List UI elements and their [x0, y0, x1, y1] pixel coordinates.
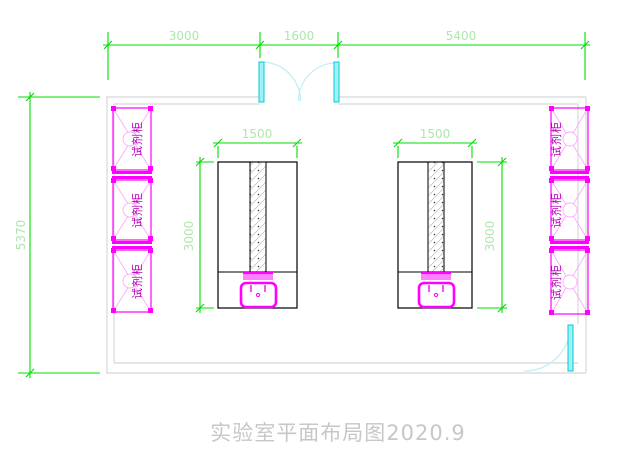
bench2-service-spine: [428, 162, 444, 272]
cabinet-label: 试剂柜: [549, 121, 563, 157]
cabinet-label: 试剂柜: [130, 263, 144, 299]
sink-faucet-marks: [251, 285, 265, 292]
reagent-cabinets-left: 试剂柜 试剂柜 试剂柜: [111, 106, 153, 313]
entrance-door-leaf-right: [334, 62, 339, 102]
side-door-arc: [525, 325, 571, 371]
cabinet-cell: 试剂柜: [549, 106, 590, 171]
dimension-lines: [18, 32, 590, 378]
sink-grill: [244, 274, 272, 280]
side-door: [525, 325, 574, 371]
drawing-title: 实验室平面布局图2020.9: [210, 421, 465, 445]
cabinet-cell: 试剂柜: [111, 248, 153, 313]
dim-bench2-width-label: 1500: [420, 127, 451, 141]
room-walls: [106, 97, 586, 373]
cabinet-cell: 试剂柜: [111, 178, 153, 241]
side-door-leaf: [568, 325, 573, 371]
sink-basin: [241, 283, 276, 307]
cabinet-cell: 试剂柜: [111, 106, 153, 171]
lab-bench-2: [398, 162, 472, 308]
bench1-service-spine: [250, 162, 266, 272]
dim-top-door-label: 1600: [284, 29, 315, 43]
dim-bench1-width-label: 1500: [242, 127, 273, 141]
cabinet-cell: 试剂柜: [549, 178, 590, 241]
entrance-door-arc-left: [262, 62, 301, 101]
sink-drain: [256, 293, 259, 296]
lab-bench-1: [218, 162, 297, 308]
dim-top-right-label: 5400: [446, 29, 477, 43]
cabinet-label: 试剂柜: [130, 121, 144, 157]
sink-2: [419, 273, 454, 307]
reagent-cabinets-right: 试剂柜 试剂柜 试剂柜: [549, 106, 590, 315]
dim-top-left-label: 3000: [169, 29, 200, 43]
cabinet-label: 试剂柜: [549, 192, 563, 228]
cabinet-label: 试剂柜: [549, 264, 563, 300]
entrance-door-arc-right: [299, 63, 337, 101]
dim-bench1-depth-label: 3000: [182, 221, 196, 252]
floor-plan-canvas: 3000 1600 5400 5370 1500 3000 1500 3000: [0, 0, 619, 469]
floor-plan-drawing: 3000 1600 5400 5370 1500 3000 1500 3000: [0, 0, 619, 469]
dim-bench2-depth-label: 3000: [483, 221, 497, 252]
entrance-door-leaf-left: [259, 62, 264, 102]
sink-1: [241, 273, 276, 307]
dim-room-depth-label: 5370: [14, 220, 28, 251]
cabinet-cell: 试剂柜: [549, 248, 590, 315]
cabinet-label: 试剂柜: [130, 192, 144, 228]
entrance-double-door: [259, 62, 339, 102]
